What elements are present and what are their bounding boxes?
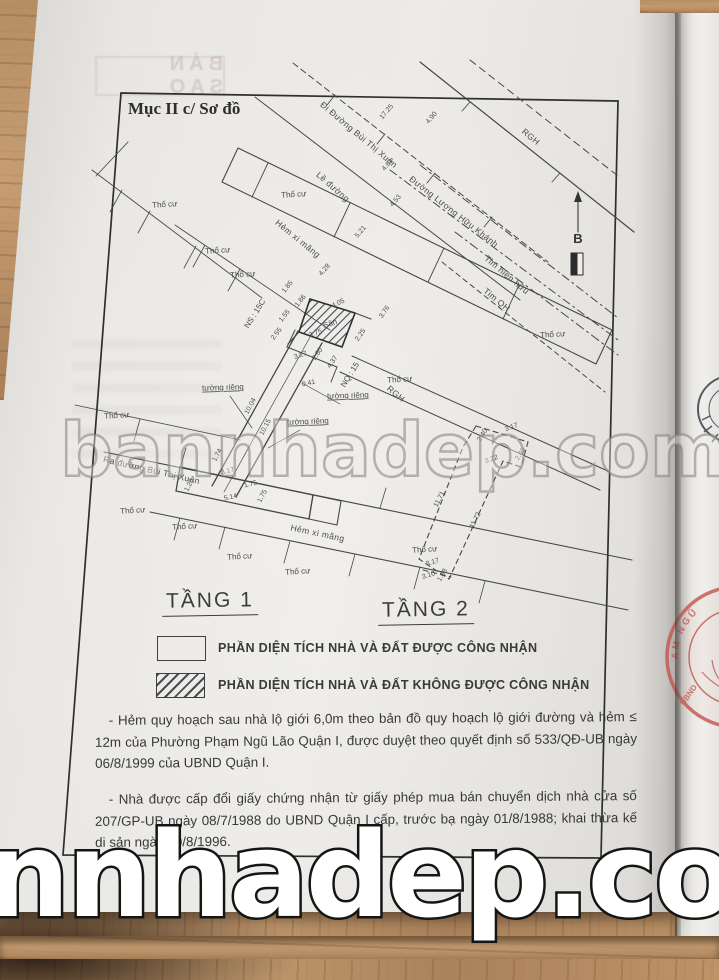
land-use-label: Thổ cư xyxy=(152,199,179,210)
dimension-label: 0.41 xyxy=(301,379,316,389)
dimension-label: 1.85 xyxy=(281,280,295,295)
land-use-label: Thổ cư xyxy=(205,245,232,256)
dimension-label: 3.27 xyxy=(293,350,308,361)
wall-note-label: tường riêng xyxy=(327,390,369,400)
street-label: Đường Lương Hữu Khánh xyxy=(407,174,500,250)
plot-name-label: NQ : 15 xyxy=(339,360,362,389)
dimension-label: 11.72 xyxy=(469,511,483,529)
dimension-label: 5.14 xyxy=(223,493,238,503)
street-label: Tim QH xyxy=(482,286,513,314)
street-label: Lề đường xyxy=(314,170,351,204)
land-use-label: Thổ cư xyxy=(230,269,257,280)
land-use-label: Thổ cư xyxy=(120,505,147,516)
dimension-label: 2.55 xyxy=(270,327,284,342)
land-use-label: Thổ cư xyxy=(227,551,254,562)
bottom-watermark: nnhadep.com xyxy=(0,806,719,944)
land-use-label: Thổ cư xyxy=(281,189,308,200)
dimension-label: 1.08 xyxy=(436,568,449,583)
desk-wood-top-right xyxy=(640,0,719,13)
dimension-label: 3.17 xyxy=(425,557,440,568)
dimension-label: 5.21 xyxy=(354,225,368,240)
dimension-label: 4.28 xyxy=(318,263,332,278)
dimension-label: 2.25 xyxy=(354,328,368,343)
dimension-label: 2.60 xyxy=(311,347,325,362)
land-use-label: Thổ cư xyxy=(540,329,567,340)
north-label: B xyxy=(573,231,582,246)
dimension-label: 1.86 xyxy=(294,294,308,309)
dimension-label: 4.37 xyxy=(326,355,340,370)
dimension-label: 1.55 xyxy=(278,309,292,324)
dimension-label: 3.10 xyxy=(421,570,436,581)
street-label: Hẻm xi măng xyxy=(273,217,322,259)
dimension-label: 4.90 xyxy=(425,111,439,126)
land-use-label: Thổ cư xyxy=(172,521,199,532)
land-use-label: Thổ cư xyxy=(387,374,414,385)
wall-note-label: tường riêng xyxy=(202,382,244,392)
land-use-label: Thổ cư xyxy=(412,544,439,555)
dimension-label: 4.53 xyxy=(389,194,403,209)
land-use-label: Thổ cư xyxy=(285,566,312,577)
street-label: Hẻm xi măng xyxy=(290,522,346,543)
plot-name-label: NS : 15C xyxy=(242,297,267,329)
dimension-label: 17.25 xyxy=(379,103,396,121)
dimension-label: 3.76 xyxy=(378,305,392,320)
center-watermark: bannhadep.com xyxy=(60,408,700,494)
